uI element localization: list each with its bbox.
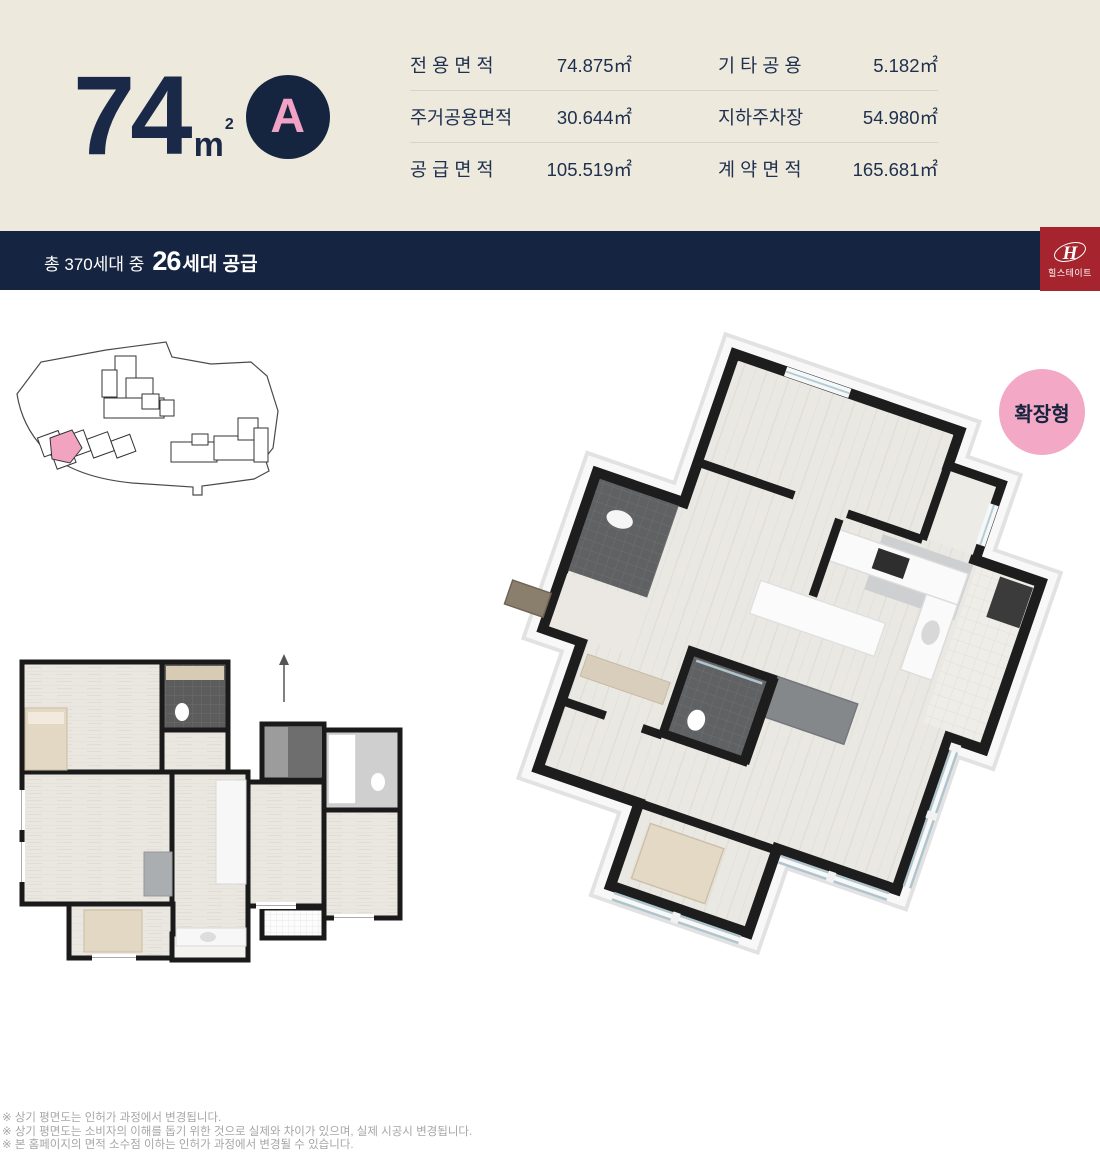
supply-text: 총 370세대 중 26 세대 공급	[44, 246, 258, 277]
supply-suffix: 세대 공급	[182, 249, 257, 276]
hallway	[162, 730, 228, 772]
disclaimer-line: ※ 상기 평면도는 인허가 과정에서 변경됩니다.	[2, 1112, 472, 1126]
balcony-right	[262, 908, 324, 938]
area-label: 공 급 면 적	[410, 156, 532, 182]
bedroom-2	[248, 782, 324, 906]
brand-monogram-icon: H	[1051, 239, 1089, 265]
supply-count: 26	[152, 246, 180, 277]
table	[144, 852, 172, 896]
svg-text:H: H	[1062, 243, 1079, 264]
supply-prefix: 총 370세대 중	[44, 250, 144, 275]
header: 74 m2 A 전 용 면 적 74.875㎡ 기 타 공 용 5.182㎡ 주…	[0, 0, 1100, 231]
disclaimer-line: ※ 상기 평면도는 소비자의 이해를 돕기 위한 것으로 실제와 차이가 있으며…	[2, 1126, 472, 1140]
floorplan-3d	[472, 320, 1092, 1022]
toilet-1	[175, 703, 189, 721]
elevator	[288, 727, 322, 777]
brand-logo: H 힐스테이트	[1040, 227, 1100, 291]
area-label: 주거공용면적	[410, 104, 532, 130]
area-label: 지하주차장	[718, 104, 828, 130]
north-arrow-icon	[279, 654, 289, 702]
site-plan	[14, 330, 286, 518]
bed-2	[84, 910, 142, 952]
toilet-2	[371, 773, 385, 791]
area-value: 5.182㎡	[828, 52, 938, 78]
area-table-row: 주거공용면적 30.644㎡ 지하주차장 54.980㎡	[410, 91, 938, 143]
area-table-row: 전 용 면 적 74.875㎡ 기 타 공 용 5.182㎡	[410, 39, 938, 91]
floorplan-2d	[12, 650, 410, 970]
supply-bar: 총 370세대 중 26 세대 공급	[0, 231, 1100, 290]
area-unit: m2	[194, 128, 233, 162]
type-badge: A	[246, 75, 330, 159]
area-unit-sup: 2	[225, 116, 234, 133]
area-table-row: 공 급 면 적 105.519㎡ 계 약 면 적 165.681㎡	[410, 143, 938, 194]
area-value: 74.875㎡	[532, 52, 632, 78]
plan3d-body	[472, 320, 1081, 1000]
area-label: 계 약 면 적	[718, 156, 828, 182]
area-table: 전 용 면 적 74.875㎡ 기 타 공 용 5.182㎡ 주거공용면적 30…	[410, 39, 938, 194]
area-unit-m: m	[194, 126, 224, 164]
area-label: 기 타 공 용	[718, 52, 828, 78]
sink	[200, 932, 216, 942]
area-value: 30.644㎡	[532, 104, 632, 130]
brand-name: 힐스테이트	[1048, 266, 1092, 279]
area-value: 54.980㎡	[828, 104, 938, 130]
area-value: 165.681㎡	[828, 156, 938, 182]
unit-type-title: 74 m2 A	[73, 0, 330, 231]
bath-vanity	[166, 666, 224, 680]
kitchen-cabinet	[216, 780, 246, 884]
disclaimers: ※ 상기 평면도는 인허가 과정에서 변경됩니다. ※ 상기 평면도는 소비자의…	[2, 1112, 472, 1153]
page: 74 m2 A 전 용 면 적 74.875㎡ 기 타 공 용 5.182㎡ 주…	[0, 0, 1100, 1160]
area-label: 전 용 면 적	[410, 52, 532, 78]
bathtub	[328, 734, 356, 804]
bed-1-pillow	[28, 712, 64, 724]
area-value: 105.519㎡	[532, 156, 632, 182]
bedroom-3	[324, 810, 400, 918]
area-number: 74	[73, 60, 188, 172]
disclaimer-line: ※ 본 홈페이지의 면적 소수점 이하는 인허가 과정에서 변경될 수 있습니다…	[2, 1139, 472, 1153]
